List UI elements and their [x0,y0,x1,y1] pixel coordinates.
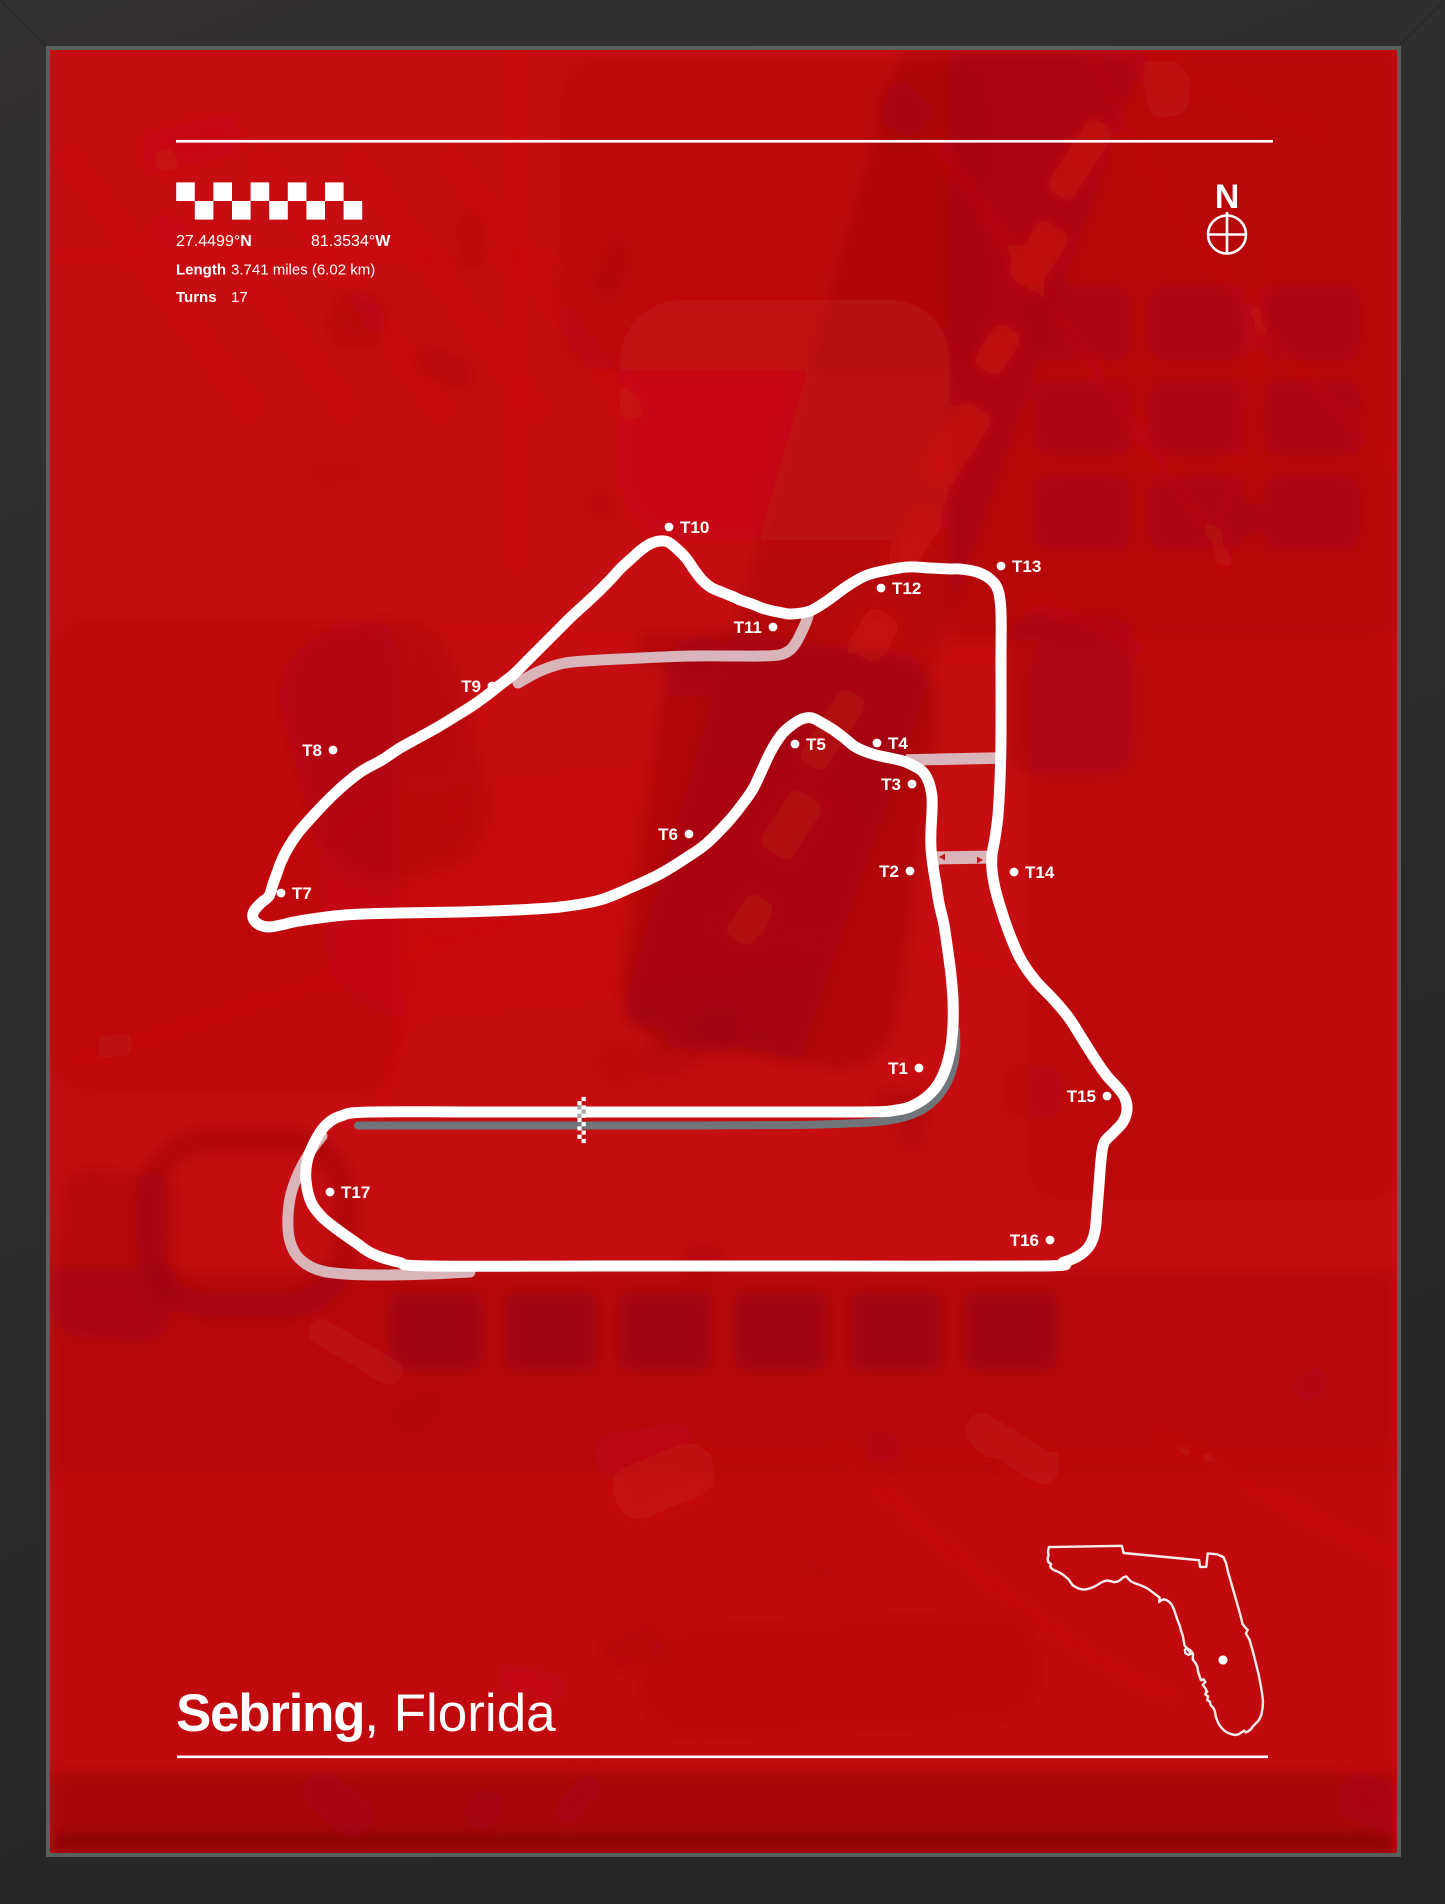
svg-text:T11: T11 [734,618,762,637]
svg-text:N: N [1215,178,1240,216]
svg-text:T6: T6 [658,825,678,844]
svg-text:T7: T7 [292,884,312,903]
svg-text:T15: T15 [1067,1087,1096,1106]
svg-text:T13: T13 [1012,557,1041,576]
svg-text:T10: T10 [680,518,709,537]
svg-text:T17: T17 [341,1183,370,1202]
svg-text:T4: T4 [888,734,908,753]
svg-text:Length3.741 miles (6.02 km): Length3.741 miles (6.02 km) [176,262,375,279]
svg-text:T5: T5 [806,735,826,754]
svg-text:T12: T12 [892,579,921,598]
svg-text:Turns17: Turns17 [176,289,248,306]
svg-text:T9: T9 [461,677,481,696]
svg-text:Sebring, Florida: Sebring, Florida [176,1684,556,1743]
svg-text:T2: T2 [879,862,899,881]
svg-text:T16: T16 [1010,1231,1039,1250]
svg-text:T14: T14 [1025,863,1055,882]
svg-text:T8: T8 [302,741,322,760]
svg-text:T3: T3 [881,775,901,794]
svg-text:T1: T1 [888,1059,908,1078]
